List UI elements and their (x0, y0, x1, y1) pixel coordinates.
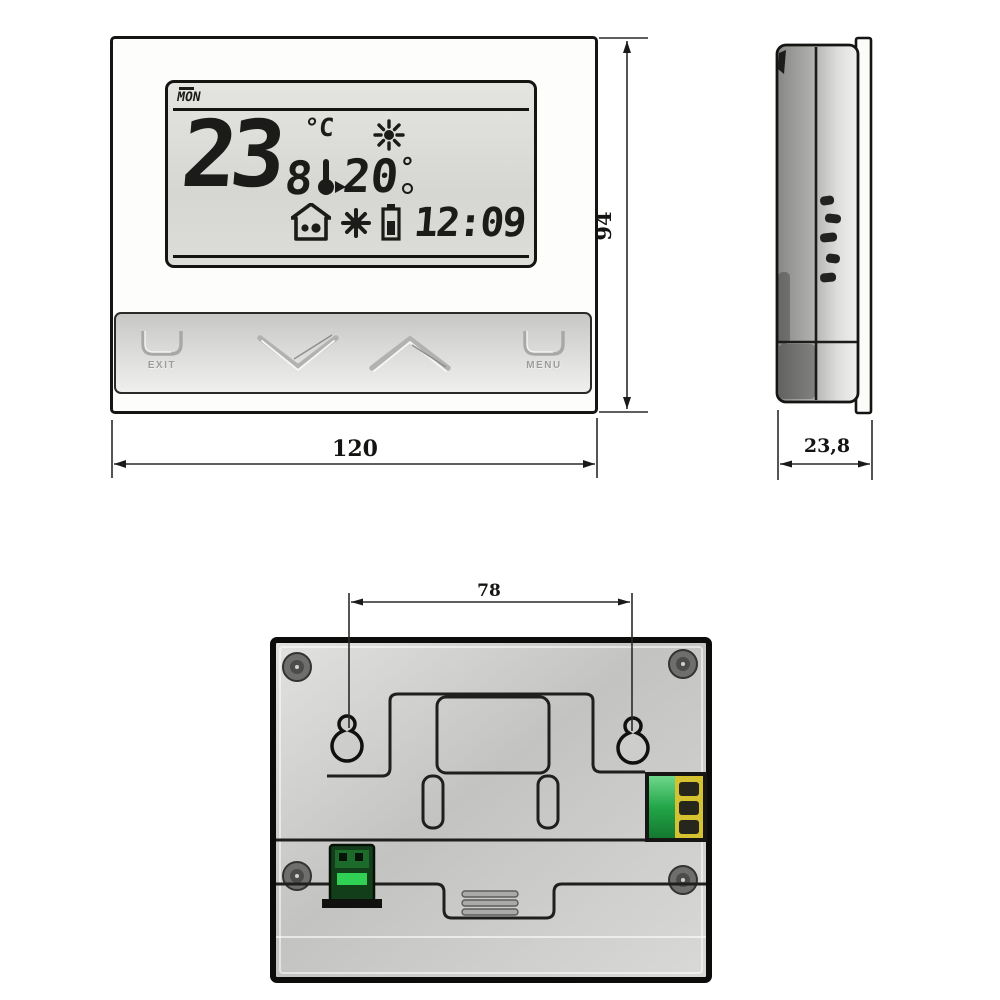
vent-slots (462, 891, 518, 915)
sun-burst-icon (340, 207, 372, 239)
mount-plate-outline (327, 694, 645, 776)
side-body (777, 45, 858, 402)
dimension-label-depth: 23,8 (804, 435, 850, 457)
side-button-bulge (779, 344, 815, 399)
chevron-down-icon[interactable] (254, 329, 342, 377)
chevron-up-icon[interactable] (366, 329, 454, 377)
lcd-setpoint-degree: ° (398, 155, 416, 181)
button-bar: EXIT MENU (114, 312, 592, 394)
lcd-footer-divider (173, 255, 529, 258)
latch-slot-right (538, 776, 558, 828)
latch-slot-left (423, 776, 443, 828)
terminal-block (645, 772, 707, 842)
side-left-shadow (778, 272, 790, 344)
dimension-label-width: 120 (332, 436, 378, 462)
lcd-time: 12:09 (412, 203, 526, 243)
side-view (740, 20, 910, 480)
battery-cover-outline (437, 697, 549, 773)
house-icon (291, 203, 331, 241)
connector-socket (322, 845, 382, 908)
menu-label: MENU (526, 360, 561, 371)
degree-mark-icon (402, 183, 413, 194)
lcd-temperature-unit: °C (303, 115, 335, 140)
front-view-body: MON 23 °C 8 20 ° (110, 36, 598, 414)
lcd-display: MON 23 °C 8 20 ° (165, 80, 537, 268)
keyhole-mount-right (618, 718, 648, 763)
menu-button[interactable]: MENU (520, 330, 568, 371)
battery-icon (380, 203, 402, 241)
corner-screws (283, 650, 697, 894)
lcd-setpoint: 20 (341, 153, 400, 199)
lcd-temperature: 23 (178, 109, 283, 201)
lcd-program-digit: 8 (283, 155, 315, 201)
back-panel (273, 640, 709, 980)
bracket-icon (138, 330, 186, 358)
side-vent-slots (820, 195, 842, 283)
dimension-label-mounting: 78 (477, 581, 501, 601)
side-back-plate (856, 38, 871, 413)
sun-icon (373, 119, 405, 151)
drawing-canvas: MON 23 °C 8 20 ° (0, 0, 1000, 1000)
back-panel-highlight (280, 647, 702, 973)
back-view (260, 630, 730, 995)
exit-button[interactable]: EXIT (138, 330, 186, 371)
bracket-icon (520, 330, 568, 358)
keyhole-mount-left (332, 716, 362, 761)
bottom-notch-outline (276, 884, 706, 918)
side-top-clip (778, 50, 786, 74)
exit-label: EXIT (148, 360, 176, 371)
